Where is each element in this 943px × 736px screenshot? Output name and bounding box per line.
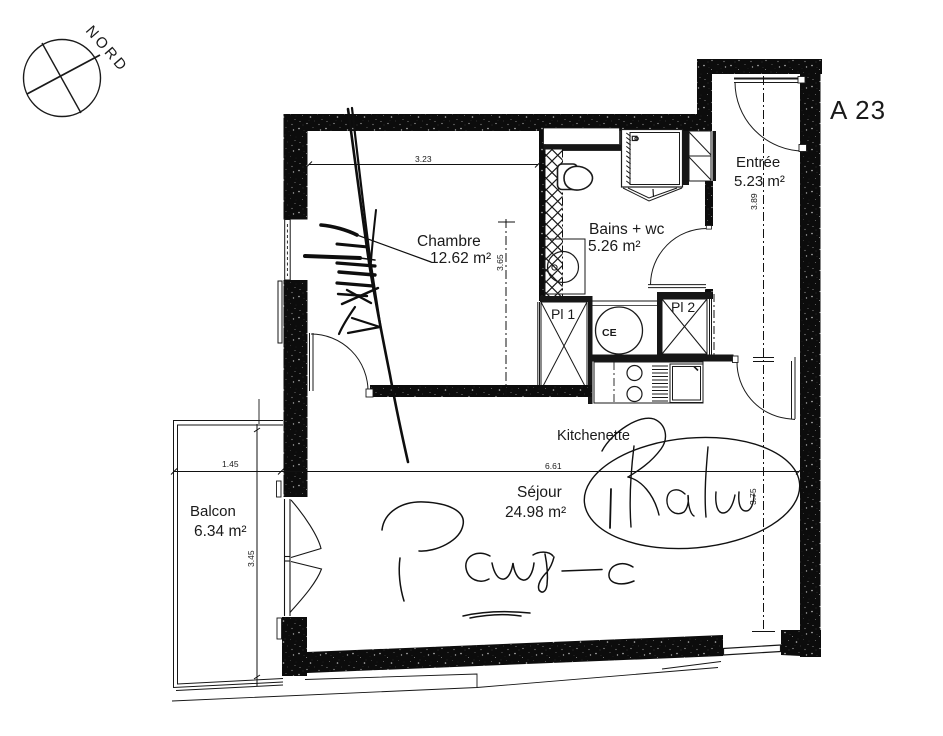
svg-text:Séjour: Séjour <box>517 484 562 501</box>
svg-text:Bains + wc: Bains + wc <box>589 221 665 238</box>
svg-text:CE: CE <box>602 327 617 339</box>
svg-text:3.65: 3.65 <box>495 254 505 271</box>
svg-text:Chambre: Chambre <box>417 233 481 250</box>
svg-text:Balcon: Balcon <box>190 503 236 520</box>
svg-text:NORD: NORD <box>82 22 132 76</box>
svg-text:Pl 1: Pl 1 <box>551 306 575 322</box>
svg-text:3.23: 3.23 <box>415 154 432 164</box>
svg-text:12.62 m²: 12.62 m² <box>430 250 491 267</box>
svg-text:6.61: 6.61 <box>545 461 562 471</box>
svg-text:3.45: 3.45 <box>246 550 256 567</box>
svg-text:Entrée: Entrée <box>736 154 780 171</box>
svg-text:6.34 m²: 6.34 m² <box>194 523 247 540</box>
svg-text:1.45: 1.45 <box>222 459 239 469</box>
svg-text:24.98 m²: 24.98 m² <box>505 504 566 521</box>
svg-text:Pl 2: Pl 2 <box>671 299 695 315</box>
svg-text:A 23: A 23 <box>830 95 886 125</box>
svg-text:5.23 m²: 5.23 m² <box>734 173 785 190</box>
svg-text:5.26 m²: 5.26 m² <box>588 238 641 255</box>
svg-text:3.89: 3.89 <box>749 193 759 210</box>
